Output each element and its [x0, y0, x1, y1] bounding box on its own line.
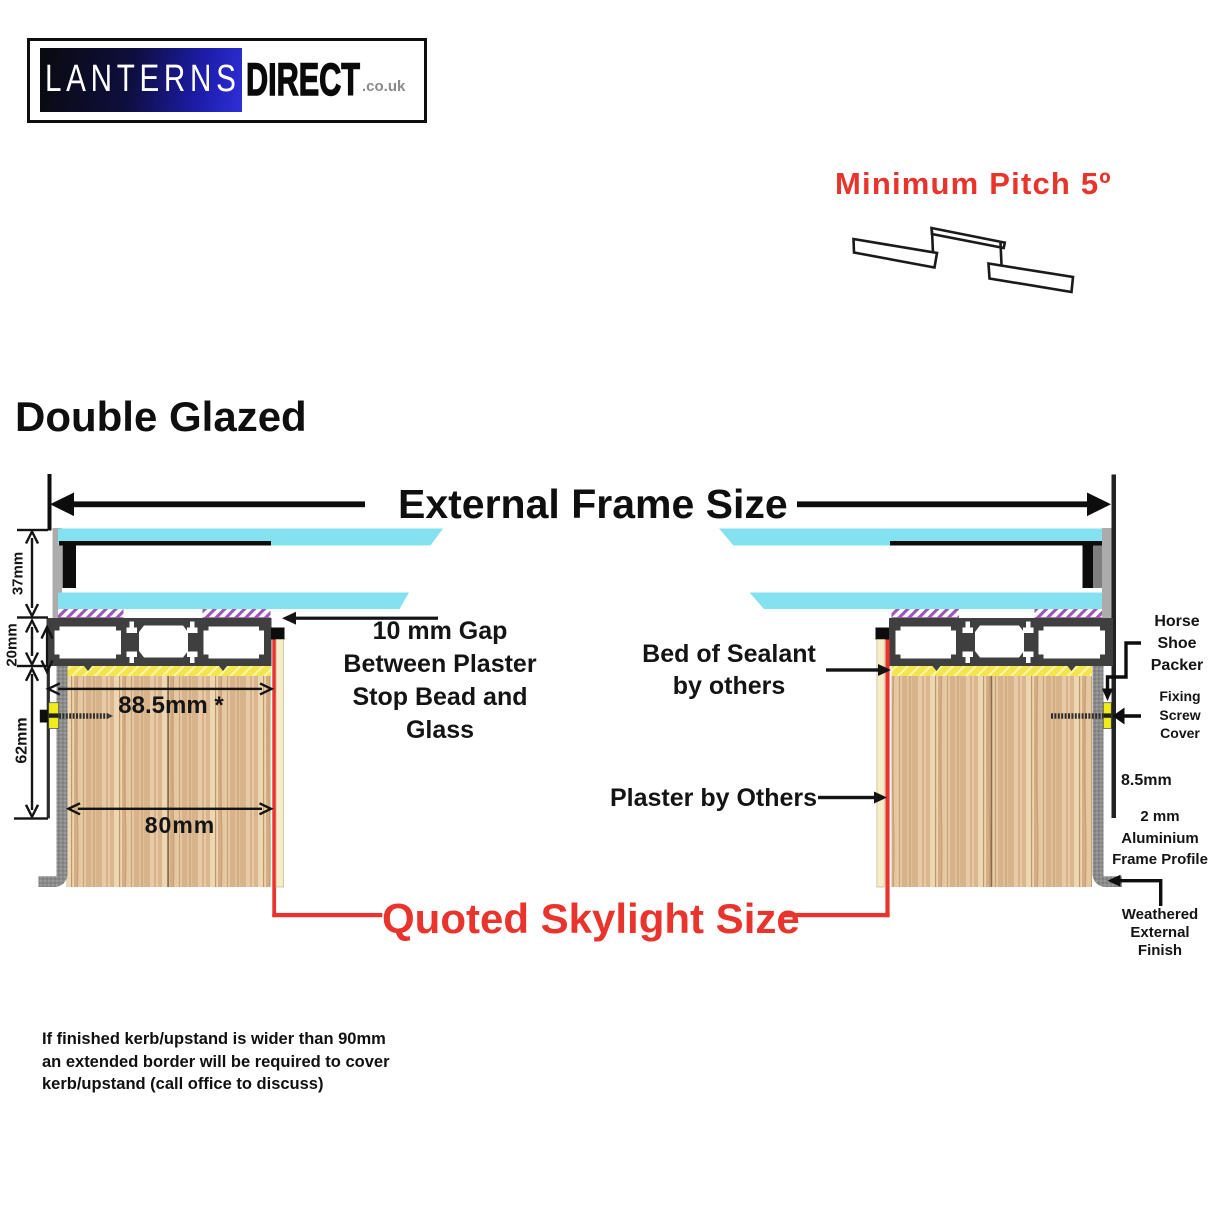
svg-text:37mm: 37mm: [10, 552, 27, 595]
svg-text:20mm: 20mm: [4, 623, 21, 666]
svg-text:62mm: 62mm: [14, 717, 31, 763]
